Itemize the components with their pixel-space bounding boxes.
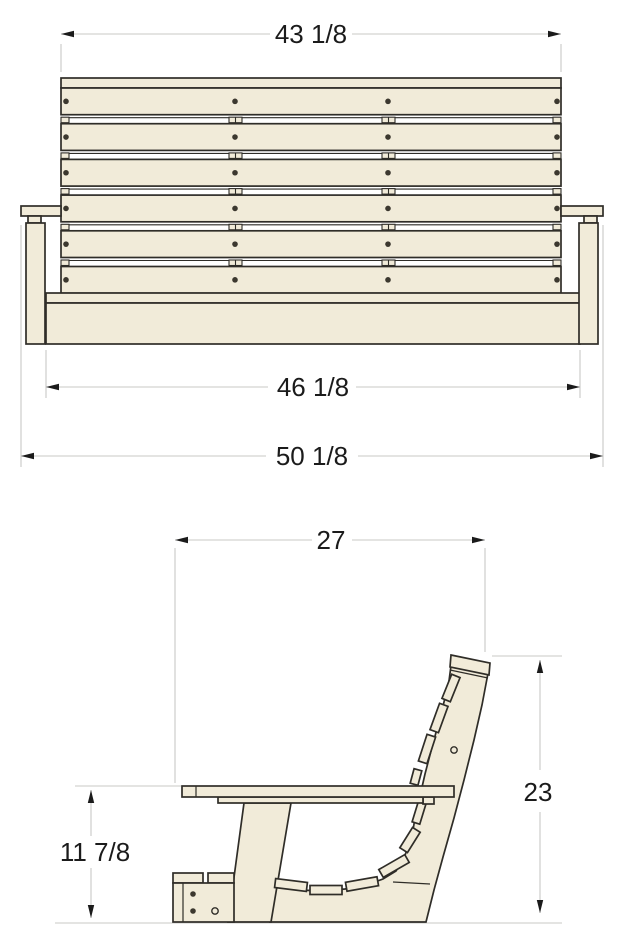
screw-dot [385,241,391,247]
back-slat-row [61,88,561,115]
foot-screw [190,908,196,914]
dim-arrowhead [21,453,34,459]
right-arm-post [579,223,598,344]
slat-gap-notch [61,189,69,195]
screw-dot [63,241,69,247]
screw-dot [232,206,238,212]
back-slat-row [61,267,561,294]
dim-arrowhead [46,384,59,390]
screw-dot [385,206,391,212]
side-seat-slat [310,886,342,895]
back-slat-row [61,195,561,222]
slat-gap-notch [553,224,561,230]
right-armrest [561,206,603,216]
dim-label-back-width: 43 1/8 [275,19,347,49]
slat-gap-notch [61,260,69,266]
screw-dot [554,99,560,105]
dim-label-seat-height: 11 7/8 [60,837,130,867]
left-arm-cap [28,216,41,223]
left-armrest [21,206,61,216]
drawing-page: 43 1/8 46 1/8 50 1/8 [0,0,624,943]
slat-gap-notch [61,153,69,159]
dim-arrowhead [472,537,485,543]
screw-dot [554,170,560,176]
foot-tab [173,873,203,883]
back-top-cap [61,78,561,88]
dim-arrowhead [590,453,603,459]
screw-dot [385,134,391,140]
foot-tab [208,873,234,883]
back-slat-row [61,231,561,258]
screw-dot [554,206,560,212]
slat-gap-notch [61,117,69,123]
slat-gap-notch [553,189,561,195]
screw-dot [63,206,69,212]
seat-rail [46,293,580,303]
dim-arrowhead [88,790,94,803]
back-slats [61,88,561,293]
dim-arrowhead [567,384,580,390]
screw-dot [554,134,560,140]
screw-dot [385,277,391,283]
back-slat-row [61,124,561,151]
dim-arrowhead [175,537,188,543]
back-slat-row [61,159,561,186]
dim-arrowhead [88,905,94,918]
screw-dot [232,277,238,283]
screw-dot [232,134,238,140]
slat-gap-notch [61,224,69,230]
front-bench [21,78,603,344]
arm-bracket [423,797,434,804]
dim-label-back-height: 23 [524,777,553,807]
seat-apron [46,303,580,344]
screw-dot [385,99,391,105]
screw-dot [63,134,69,140]
screw-dot [63,277,69,283]
screw-dot [232,170,238,176]
side-dimensions: 27 23 11 7/8 [55,525,562,923]
side-view: 27 23 11 7/8 [55,525,562,923]
dim-arrowhead [537,660,543,673]
screw-dot [63,170,69,176]
armrest-support [218,797,423,803]
dim-label-overall-depth: 27 [317,525,346,555]
foot-block [173,883,234,922]
dim-arrowhead [537,900,543,913]
left-arm-post [26,223,45,344]
foot-screw [190,891,196,897]
dim-label-overall-width: 50 1/8 [276,441,348,471]
screw-dot [554,241,560,247]
screw-dot [232,99,238,105]
screw-dot [554,277,560,283]
side-armrest [182,786,454,797]
side-back-slat [410,769,422,786]
dim-label-seat-width: 46 1/8 [277,372,349,402]
slat-gap-notch [553,117,561,123]
dimension-drawing: 43 1/8 46 1/8 50 1/8 [0,0,624,943]
screw-dot [63,99,69,105]
screw-dot [232,241,238,247]
screw-dot [385,170,391,176]
slat-gap-notch [553,260,561,266]
dim-arrowhead [548,31,561,37]
dim-arrowhead [61,31,74,37]
slat-gap-notch [553,153,561,159]
side-bench [173,655,490,922]
right-arm-cap [584,216,597,223]
front-view: 43 1/8 46 1/8 50 1/8 [21,19,603,471]
